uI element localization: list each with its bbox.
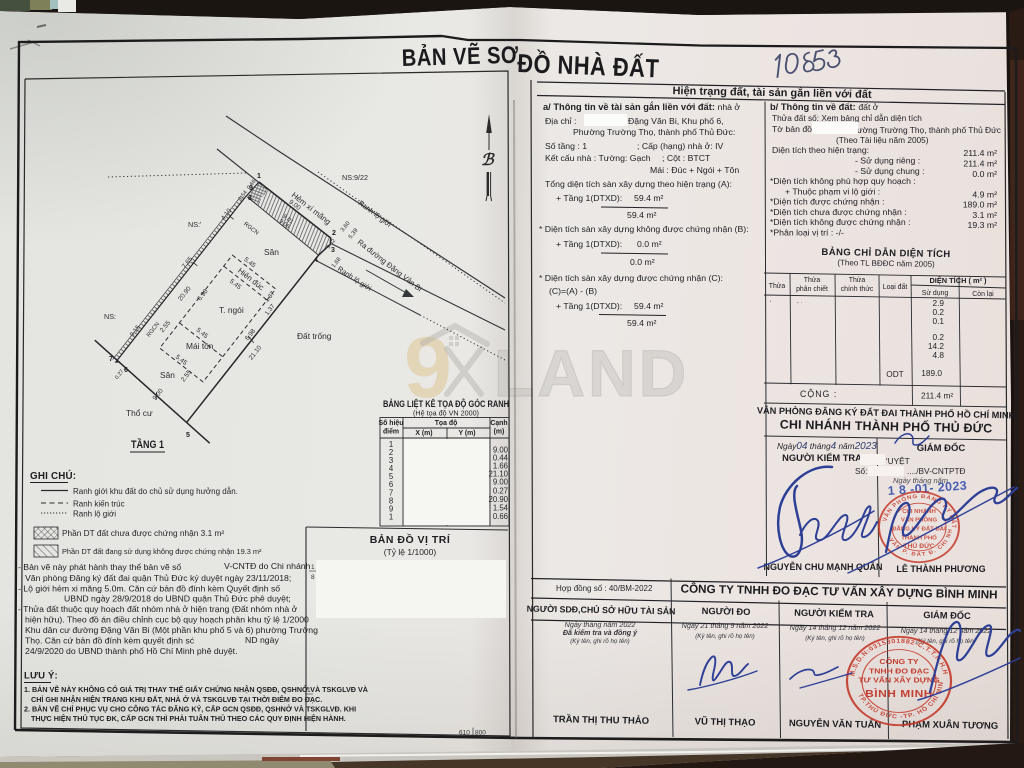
- svg-text:(Theo TL BĐĐC năm 2005): (Theo TL BĐĐC năm 2005): [837, 258, 935, 269]
- svg-text:59.4 m²: 59.4 m²: [634, 301, 664, 311]
- svg-text:- Thửa đất thuộc quy hoạch đất: - Thửa đất thuộc quy hoạch đất nhóm nhà …: [18, 604, 298, 614]
- svg-text:1: 1: [389, 513, 393, 522]
- svg-text:Y (m): Y (m): [458, 430, 475, 437]
- svg-text:211.4 m²: 211.4 m²: [921, 391, 953, 401]
- svg-text:*Diện tích chưa được chứng nhậ: *Diện tích chưa được chứng nhận :: [770, 207, 907, 217]
- svg-text:5: 5: [186, 432, 190, 439]
- svg-text:Thọ. Căn cứ bản đồ đính kèm qu: Thọ. Căn cứ bản đồ đính kèm quyết định s…: [25, 636, 195, 646]
- svg-text:6: 6: [124, 367, 128, 374]
- svg-text:Đã kiểm tra và đồng ý: Đã kiểm tra và đồng ý: [563, 628, 638, 637]
- svg-text:TNHH ĐO ĐẠC: TNHH ĐO ĐẠC: [869, 667, 929, 675]
- svg-text:6.98: 6.98: [196, 288, 210, 303]
- svg-text:TƯ VẤN XÂY DỰNG: TƯ VẤN XÂY DỰNG: [858, 675, 939, 684]
- svg-text:ʹ: ʹ: [770, 300, 771, 307]
- svg-text:211.4 m²: 211.4 m²: [963, 148, 997, 158]
- svg-text:(C)=(A) - (B): (C)=(A) - (B): [549, 286, 597, 296]
- svg-text:Loại đất: Loại đất: [883, 282, 908, 291]
- svg-text:Thửa: Thửa: [849, 276, 866, 284]
- svg-text:*Phân loại vị trí : -/-: *Phân loại vị trí : -/-: [770, 228, 844, 238]
- svg-text:*Diện tích không phù hợp quy h: *Diện tích không phù hợp quy hoạch :: [770, 176, 916, 186]
- svg-text:NS:ʹ: NS:ʹ: [188, 220, 202, 229]
- svg-text:NGUYỄN CHU MẠNH QUÂN: NGUYỄN CHU MẠNH QUÂN: [764, 561, 883, 572]
- svg-text:59.4 m²: 59.4 m²: [634, 193, 664, 203]
- svg-text:5.45: 5.45: [228, 278, 243, 292]
- svg-text:1: 1: [311, 564, 315, 571]
- svg-text:Tổng diện tích sàn xây dựng th: Tổng diện tích sàn xây dựng theo hiện tr…: [545, 179, 732, 189]
- svg-text:Thửa đất số: Xem bảng chỉ dẫn: Thửa đất số: Xem bảng chỉ dẫn diện tích: [772, 113, 922, 123]
- svg-text:20.90: 20.90: [177, 285, 193, 302]
- svg-text:0.66: 0.66: [493, 512, 508, 521]
- svg-text:5.45: 5.45: [174, 354, 189, 368]
- svg-text:X (m): X (m): [415, 430, 432, 437]
- svg-text:Ngày 14 tháng 12 năm 2022: Ngày 14 tháng 12 năm 2022: [790, 623, 881, 632]
- svg-text:a/ Thông tin về tài sản gắn li: a/ Thông tin về tài sản gắn liền với đất…: [543, 101, 740, 112]
- svg-text:2.55: 2.55: [159, 319, 173, 334]
- svg-text:9: 9: [249, 185, 253, 192]
- svg-text:1.37: 1.37: [263, 290, 276, 304]
- svg-text:CỘNG :: CỘNG :: [800, 389, 837, 399]
- svg-text:TẦNG 1: TẦNG 1: [131, 438, 164, 451]
- svg-text:1. BẢN VẼ NÀY KHÔNG CÓ GIÁ TR: 1. BẢN VẼ NÀY KHÔNG CÓ GIÁ TRỊ THAY THẾ …: [24, 684, 368, 694]
- svg-text:; Cột : BTCT: ; Cột : BTCT: [662, 153, 711, 163]
- svg-text:- Sử dụng chung :: - Sử dụng chung :: [855, 166, 925, 176]
- svg-text:Thửa: Thửa: [769, 282, 786, 290]
- svg-text:GHI CHÚ:: GHI CHÚ:: [30, 470, 76, 482]
- svg-text:Tọa độ: Tọa độ: [435, 420, 458, 427]
- svg-text:CÔNG TY: CÔNG TY: [879, 658, 919, 666]
- svg-text:- Bản vẽ này phát hành thay th: - Bản vẽ này phát hành thay thế bản vẽ s…: [18, 562, 181, 572]
- svg-text:59.4 m²: 59.4 m²: [627, 318, 657, 328]
- svg-text:9.00: 9.00: [152, 387, 166, 402]
- svg-text:(Ký tên, ghi rõ họ tên): (Ký tên, ghi rõ họ tên): [570, 638, 630, 645]
- svg-text:Ranh giới khu đất do chủ sử dụ: Ranh giới khu đất do chủ sử dụng hưởng d…: [73, 487, 238, 496]
- svg-text:Hợp đồng số : 40/BM-2022: Hợp đồng số : 40/BM-2022: [556, 584, 653, 593]
- svg-text:5.45: 5.45: [195, 327, 210, 341]
- svg-text:PHẠM XUÂN TƯƠNG: PHẠM XUÂN TƯƠNG: [902, 718, 998, 732]
- svg-text:LAND: LAND: [494, 336, 689, 410]
- svg-text:Mái tôn: Mái tôn: [186, 341, 214, 351]
- svg-text:4.9 m²: 4.9 m²: [972, 190, 997, 200]
- svg-text:ODT: ODT: [886, 369, 904, 379]
- svg-text:3.60: 3.60: [340, 221, 352, 234]
- svg-text:BẢN VẼ SƠ: BẢN VẼ SƠ: [401, 41, 519, 71]
- svg-text:LƯU Ý:: LƯU Ý:: [24, 670, 58, 682]
- svg-text:Số hiệu: Số hiệu: [379, 419, 404, 427]
- svg-text:Ranh lộ giới: Ranh lộ giới: [336, 264, 374, 293]
- svg-text:CHỈ GHI NHẬN HIỆN TRẠNG KHU ĐẤ: CHỈ GHI NHẬN HIỆN TRẠNG KHU ĐẤT, NHÀ Ở V…: [31, 694, 322, 704]
- svg-text:b/ Thông tin về đất: đất ở: b/ Thông tin về đất: đất ở: [770, 102, 879, 112]
- svg-text:(Theo Tài liệu năm 2005): (Theo Tài liệu năm 2005): [836, 135, 929, 145]
- svg-text:19.3 m²: 19.3 m²: [968, 220, 998, 230]
- svg-text:800: 800: [475, 730, 486, 737]
- svg-text:Phần DT đất đang sử dụng không: Phần DT đất đang sử dụng không được chứn…: [62, 547, 262, 556]
- svg-text:4.8: 4.8: [932, 350, 944, 360]
- svg-text:* Diện tích sàn xây dựng được: * Diện tích sàn xây dựng được chứng nhận…: [539, 273, 723, 283]
- svg-text:*Diện tích không được chứng nh: *Diện tích không được chứng nhận :: [770, 217, 911, 227]
- svg-text:(Ký tên, ghi rõ họ tên): (Ký tên, ghi rõ họ tên): [805, 635, 865, 642]
- svg-text:ℬ: ℬ: [481, 152, 495, 169]
- svg-text:0.1: 0.1: [932, 316, 944, 326]
- svg-text:NGƯỜI KIỂM TRA: NGƯỜI KIỂM TRA: [782, 452, 862, 463]
- svg-text:Mái : Đúc + Ngói + Tôn: Mái : Đúc + Ngói + Tôn: [650, 165, 739, 175]
- svg-text:1: 1: [257, 173, 261, 180]
- svg-text:8: 8: [311, 574, 315, 581]
- svg-text:189.0: 189.0: [921, 368, 942, 378]
- svg-text:+ Tầng 1(DTXD):: + Tầng 1(DTXD):: [556, 239, 622, 249]
- svg-text:+ Tầng 1(DTXD):: + Tầng 1(DTXD):: [556, 301, 622, 311]
- svg-text:ĐỒ NHÀ ĐẤT: ĐỒ NHÀ ĐẤT: [517, 48, 660, 84]
- svg-text:1: 1: [307, 687, 311, 694]
- svg-text:- Sử dụng riêng :: - Sử dụng riêng :: [855, 156, 920, 166]
- svg-text:Diện tích theo hiện trạng:: Diện tích theo hiện trạng:: [772, 145, 869, 155]
- svg-text:ND ngày: ND ngày: [245, 635, 279, 645]
- svg-text:24/9/2020 do UBND thành phố H: 24/9/2020 do UBND thành phố Hồ Chí Minh …: [25, 646, 238, 656]
- svg-text:BẢN ĐỒ VỊ TRÍ: BẢN ĐỒ VỊ TRÍ: [370, 533, 451, 546]
- svg-text:+ Tầng 1(DTXD):: + Tầng 1(DTXD):: [556, 193, 622, 203]
- svg-text:Sử dụng: Sử dụng: [922, 289, 949, 297]
- svg-text:GIÁM ĐỐC: GIÁM ĐỐC: [923, 609, 971, 621]
- svg-text:NGƯỜI SDĐ,CHỦ SỞ HỮU TÀI SẢN: NGƯỜI SDĐ,CHỦ SỞ HỮU TÀI SẢN: [527, 603, 676, 617]
- svg-text:BẢNG LIỆT KÊ TỌA ĐỘ GÓC RANH: BẢNG LIỆT KÊ TỌA ĐỘ GÓC RANH: [383, 398, 509, 409]
- svg-text:CÔNG TY TNHH ĐO ĐẠC TƯ VẤN XÂY: CÔNG TY TNHH ĐO ĐẠC TƯ VẤN XÂY DỰNG BÌNH…: [680, 582, 997, 601]
- svg-text:Địa chỉ :: Địa chỉ :: [545, 116, 576, 126]
- svg-text:Đặng Văn Bi, Khu phố 6,: Đặng Văn Bi, Khu phố 6,: [628, 116, 724, 126]
- svg-text:- Lộ giới hẻm xi măng 5.0m. Că: - Lộ giới hẻm xi măng 5.0m. Căn cứ bản đ…: [18, 584, 280, 594]
- svg-text:GIÁM ĐỐC: GIÁM ĐỐC: [917, 442, 966, 454]
- svg-text:610: 610: [459, 730, 470, 737]
- svg-text:phân chiết: phân chiết: [796, 284, 828, 293]
- svg-text:; Cấp (hạng) nhà ở: IV: ; Cấp (hạng) nhà ở: IV: [637, 141, 724, 151]
- svg-text:ʹUYỆT: ʹUYỆT: [886, 456, 910, 466]
- svg-text:2: 2: [332, 230, 336, 237]
- svg-text:NGƯỜI ĐO: NGƯỜI ĐO: [702, 605, 751, 617]
- svg-text:Văn phòng Đăng ký đất đai quận: Văn phòng Đăng ký đất đai quận Thủ Đức k…: [25, 573, 291, 583]
- svg-text:THỰC HIỆN THỦ TỤC ĐK, CẤP GCN: THỰC HIỆN THỦ TỤC ĐK, CẤP GCN THÌ PHẢI T…: [31, 713, 346, 723]
- svg-text:0.0 m²: 0.0 m²: [972, 169, 997, 179]
- svg-text:211.4 m²: 211.4 m²: [963, 159, 997, 169]
- svg-text:(Ký tên, ghi rõ họ tên): (Ký tên, ghi rõ họ tên): [695, 633, 755, 640]
- svg-text:- ·: - ·: [797, 300, 802, 306]
- svg-text:0.0 m²: 0.0 m²: [630, 257, 655, 267]
- svg-text:Sân: Sân: [160, 370, 175, 380]
- svg-text:7: 7: [307, 697, 311, 704]
- svg-text:Cạnh: Cạnh: [490, 420, 507, 427]
- svg-text:Ngày04 tháng4 năm2023: Ngày04 tháng4 năm2023: [777, 441, 877, 452]
- svg-text:TRẦN THỊ THU THẢO: TRẦN THỊ THU THẢO: [553, 713, 649, 727]
- svg-text:ường Trường Thọ, thành phố Thủ: ường Trường Thọ, thành phố Thủ Đức: [857, 125, 1001, 135]
- svg-text:NS:: NS:: [104, 312, 116, 321]
- svg-text:3.1 m²: 3.1 m²: [972, 210, 997, 220]
- svg-text:5.39: 5.39: [348, 228, 360, 241]
- svg-text:Phường Trường Thọ, thành phố T: Phường Trường Thọ, thành phố Thủ Đức:: [573, 127, 735, 137]
- svg-text:RGCN: RGCN: [242, 221, 259, 236]
- svg-text:NGƯỜI KIỂM TRA: NGƯỜI KIỂM TRA: [794, 607, 874, 620]
- svg-text:189.0 m²: 189.0 m²: [963, 200, 997, 210]
- svg-text:21.10: 21.10: [248, 344, 264, 361]
- svg-text:(Hệ tọa độ VN 2000): (Hệ tọa độ VN 2000): [413, 409, 479, 418]
- svg-text:(Tỷ lệ 1/1000): (Tỷ lệ 1/1000): [384, 547, 437, 557]
- svg-text:9.00: 9.00: [493, 477, 509, 486]
- svg-text:Ranh lộ giới: Ranh lộ giới: [357, 198, 394, 229]
- svg-text:Đất trống: Đất trống: [297, 331, 332, 341]
- svg-text:chính thức: chính thức: [841, 286, 874, 293]
- svg-text:* Diện tích sàn xây dựng không: * Diện tích sàn xây dựng không được chứn…: [539, 224, 749, 234]
- svg-text:Ngày 14 tháng 12 năm 2022: Ngày 14 tháng 12 năm 2022: [901, 626, 992, 635]
- svg-text:Ngày 21 tháng 9 năm 2022: Ngày 21 tháng 9 năm 2022: [682, 621, 769, 630]
- svg-text:*Diện tích được chứng nhận :: *Diện tích được chứng nhận :: [770, 197, 884, 207]
- svg-text:Ranh kiến trúc: Ranh kiến trúc: [73, 500, 125, 509]
- svg-text:DIỆN TÍCH ( m² ): DIỆN TÍCH ( m² ): [929, 276, 987, 285]
- svg-text:T. ngói: T. ngói: [219, 305, 244, 315]
- svg-text:NGUYỄN VĂN TUẤN: NGUYỄN VĂN TUẤN: [789, 717, 882, 731]
- svg-text:Còn lại: Còn lại: [972, 291, 994, 298]
- svg-text:Kết cấu nhà : Tường: Gạch: Kết cấu nhà : Tường: Gạch: [545, 153, 651, 163]
- svg-text:V-CNTĐ do Chi nhánh: V-CNTĐ do Chi nhánh: [224, 561, 311, 571]
- svg-text:0.0 m²: 0.0 m²: [637, 239, 662, 249]
- svg-text:Sân: Sân: [264, 247, 279, 257]
- svg-text:7: 7: [109, 356, 113, 363]
- svg-text:2.55: 2.55: [180, 369, 194, 384]
- svg-text:(m): (m): [494, 429, 505, 436]
- svg-text:+ Thuộc phạm vi lộ giới :: + Thuộc phạm vi lộ giới :: [785, 187, 880, 197]
- svg-text:hiện hữu). Theo đồ án điều chỉ: hiện hữu). Theo đồ án điều chỉnh cục bộ …: [25, 615, 309, 625]
- svg-text:Thổ cư: Thổ cư: [126, 408, 153, 418]
- svg-text:VŨ THỊ THẠO: VŨ THỊ THẠO: [695, 716, 756, 728]
- svg-text:4: 4: [314, 257, 318, 264]
- svg-text:59.4 m²: 59.4 m²: [627, 210, 657, 220]
- svg-text:Ranh lộ giới: Ranh lộ giới: [73, 510, 116, 519]
- svg-text:điểm: điểm: [383, 428, 399, 436]
- svg-text:Khu dân cư đường Đặng Văn Bi (: Khu dân cư đường Đặng Văn Bi (Một phần k…: [25, 625, 318, 635]
- svg-text:UBND ngày 28/9/2018 do UBND qu: UBND ngày 28/9/2018 do UBND quận Thủ Đức…: [64, 594, 291, 604]
- svg-text:Số tầng : 1: Số tầng : 1: [545, 141, 587, 151]
- svg-text:Phần DT đất chưa được chứng nh: Phần DT đất chưa được chứng nhận 3.1 m²: [62, 528, 224, 538]
- svg-text:NS:9/22: NS:9/22: [342, 173, 368, 182]
- svg-text:3: 3: [331, 247, 335, 254]
- svg-text:LÊ THÀNH PHƯƠNG: LÊ THÀNH PHƯƠNG: [896, 563, 985, 574]
- svg-text:Thửa: Thửa: [804, 276, 821, 284]
- svg-text:8: 8: [248, 195, 252, 202]
- svg-text:..../BV-CNTPTĐ: ..../BV-CNTPTĐ: [907, 466, 966, 476]
- svg-text:CHI NHÁNH: CHI NHÁNH: [902, 508, 936, 515]
